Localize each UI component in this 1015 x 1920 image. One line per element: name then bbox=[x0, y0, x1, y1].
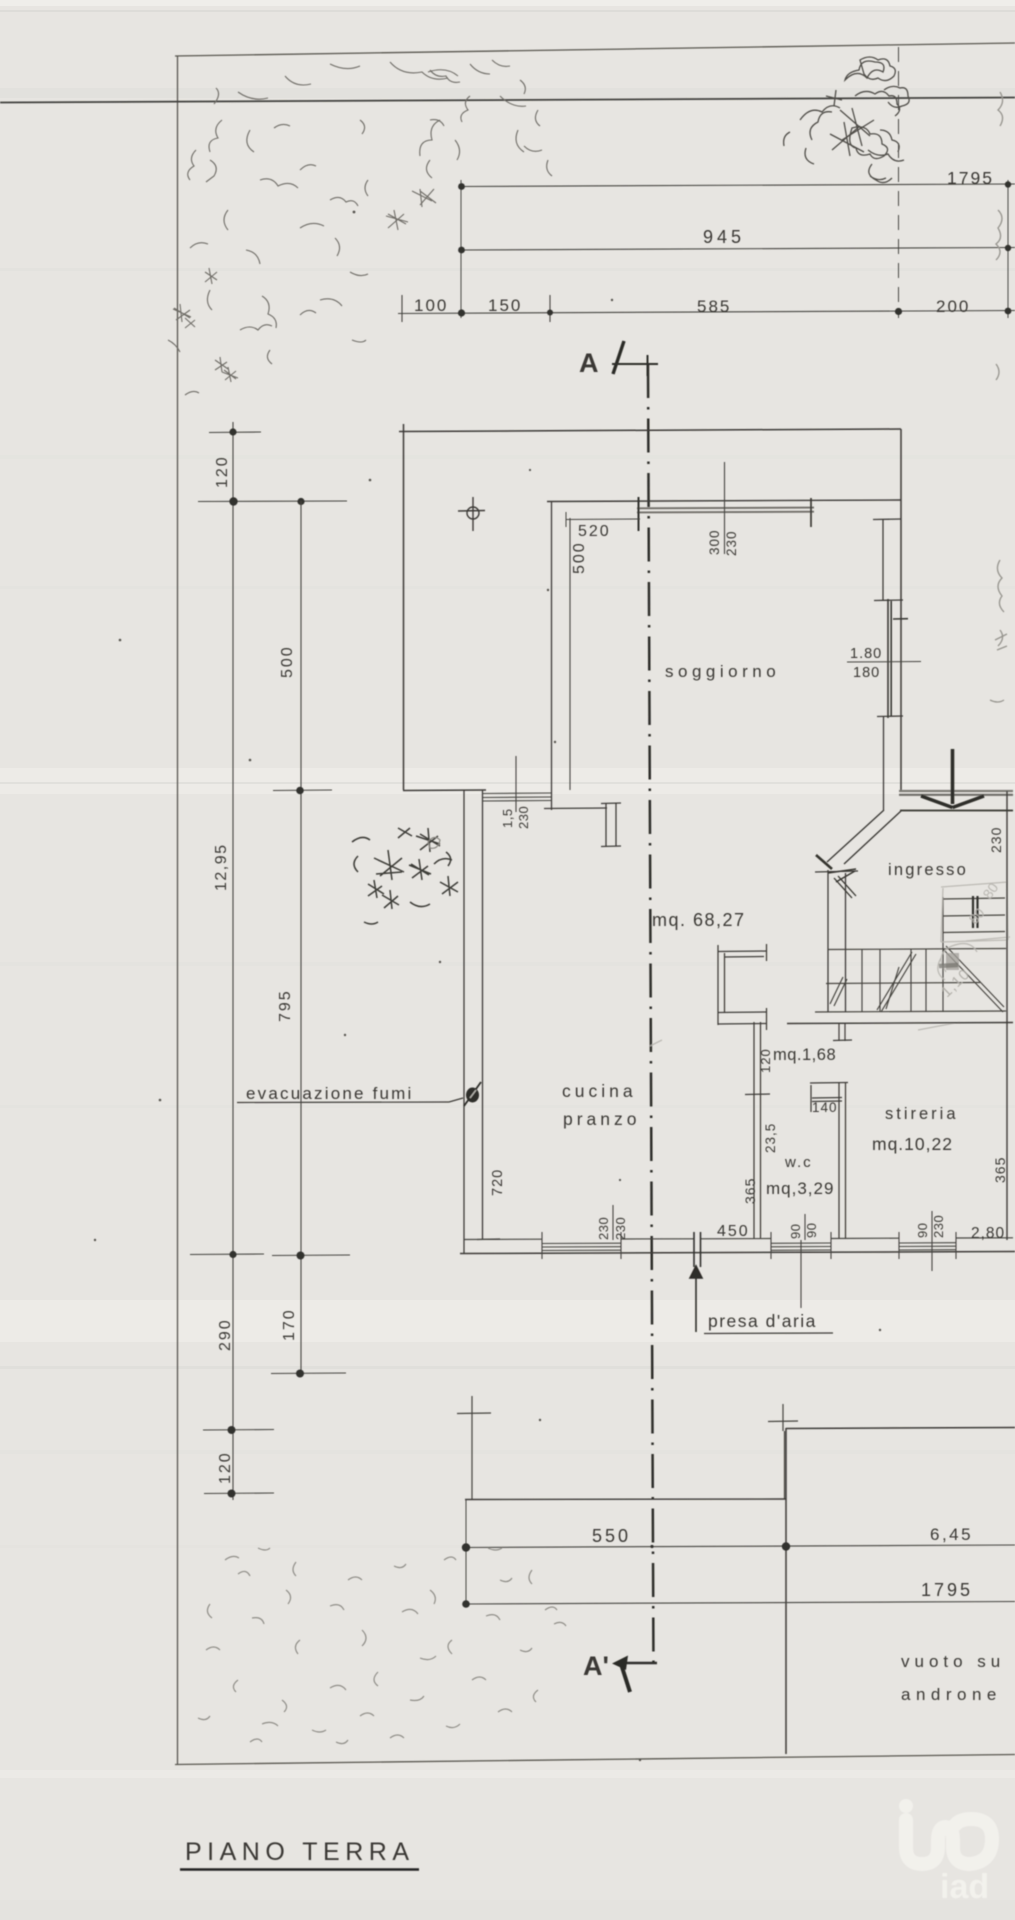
svg-text:pranzo: pranzo bbox=[563, 1109, 641, 1129]
svg-text:120: 120 bbox=[758, 1048, 773, 1073]
svg-text:mq.1,68: mq.1,68 bbox=[773, 1046, 836, 1064]
svg-text:1795: 1795 bbox=[921, 1580, 973, 1600]
svg-text:230: 230 bbox=[613, 1217, 628, 1240]
svg-text:230: 230 bbox=[516, 806, 531, 829]
svg-text:120: 120 bbox=[214, 455, 231, 488]
svg-text:365: 365 bbox=[992, 1157, 1008, 1183]
svg-text:230: 230 bbox=[596, 1217, 611, 1240]
svg-text:290: 290 bbox=[217, 1318, 234, 1351]
svg-text:iad: iad bbox=[940, 1868, 989, 1906]
svg-text:23,5: 23,5 bbox=[763, 1123, 778, 1153]
svg-text:90: 90 bbox=[915, 1223, 930, 1238]
svg-text:w.c: w.c bbox=[784, 1154, 813, 1171]
svg-text:170: 170 bbox=[281, 1308, 298, 1341]
svg-text:androne: androne bbox=[901, 1685, 1002, 1704]
svg-text:140: 140 bbox=[812, 1100, 838, 1115]
svg-text:1,5: 1,5 bbox=[500, 808, 515, 828]
svg-text:A: A bbox=[579, 348, 600, 378]
svg-text:120: 120 bbox=[217, 1451, 234, 1484]
svg-text:100: 100 bbox=[414, 296, 448, 315]
svg-text:soggiorno: soggiorno bbox=[665, 662, 780, 681]
svg-text:180: 180 bbox=[853, 665, 880, 681]
svg-text:500: 500 bbox=[279, 645, 296, 678]
svg-text:presa d'aria: presa d'aria bbox=[708, 1311, 817, 1331]
svg-text:795: 795 bbox=[277, 989, 294, 1022]
svg-text:mq. 68,27: mq. 68,27 bbox=[652, 910, 746, 930]
svg-text:150: 150 bbox=[488, 296, 522, 315]
svg-text:585: 585 bbox=[697, 297, 731, 316]
svg-text:365: 365 bbox=[742, 1178, 758, 1204]
svg-text:vuoto su: vuoto su bbox=[901, 1652, 1005, 1671]
svg-text:cucina: cucina bbox=[562, 1081, 637, 1101]
svg-text:evacuazione fumi: evacuazione fumi bbox=[246, 1084, 414, 1103]
svg-text:720: 720 bbox=[490, 1169, 506, 1196]
svg-text:6,45: 6,45 bbox=[930, 1525, 973, 1544]
svg-text:450: 450 bbox=[717, 1223, 750, 1240]
svg-text:550: 550 bbox=[592, 1526, 631, 1546]
svg-text:500: 500 bbox=[571, 541, 588, 574]
svg-text:1.80: 1.80 bbox=[850, 646, 882, 662]
svg-text:230: 230 bbox=[931, 1215, 946, 1238]
svg-text:mq,3,29: mq,3,29 bbox=[766, 1179, 834, 1198]
svg-text:90: 90 bbox=[788, 1224, 803, 1239]
svg-text:12,95: 12,95 bbox=[213, 843, 230, 891]
svg-text:90: 90 bbox=[804, 1223, 819, 1238]
svg-text:520: 520 bbox=[578, 523, 611, 540]
svg-text:230: 230 bbox=[724, 530, 739, 556]
svg-text:1795: 1795 bbox=[947, 168, 994, 188]
svg-text:mq.10,22: mq.10,22 bbox=[872, 1134, 953, 1154]
svg-text:2,80: 2,80 bbox=[971, 1225, 1005, 1242]
svg-text:ingresso: ingresso bbox=[888, 861, 968, 879]
svg-text:300: 300 bbox=[707, 529, 722, 555]
svg-text:945: 945 bbox=[703, 227, 745, 247]
svg-text:stireria: stireria bbox=[885, 1105, 959, 1123]
svg-text:200: 200 bbox=[936, 297, 970, 316]
svg-text:PIANO TERRA: PIANO TERRA bbox=[185, 1838, 415, 1866]
svg-text:A': A' bbox=[583, 1651, 609, 1681]
svg-text:230: 230 bbox=[988, 827, 1004, 853]
